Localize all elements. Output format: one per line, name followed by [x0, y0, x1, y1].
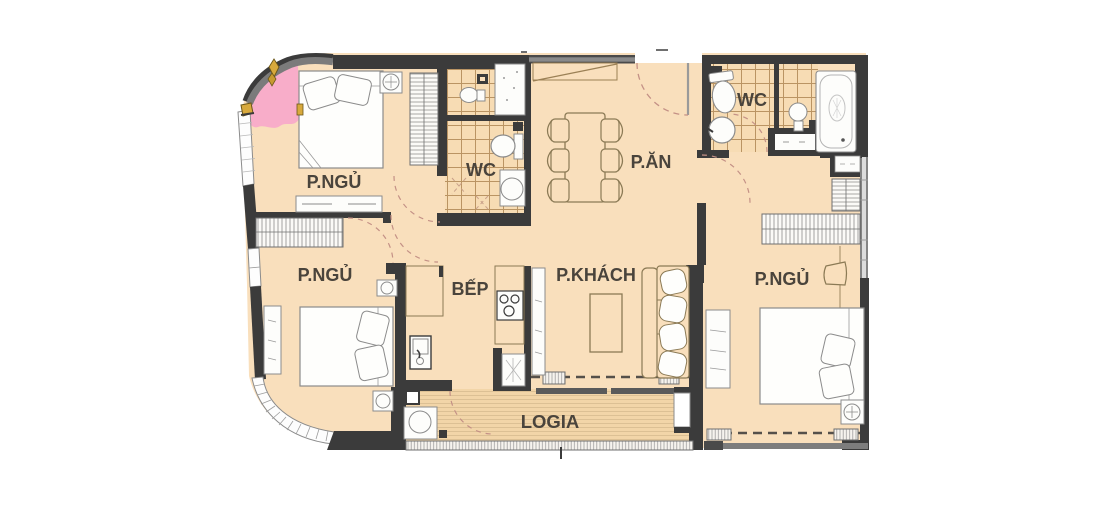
svg-text:P.NGỦ: P.NGỦ: [298, 264, 353, 285]
svg-text:P.NGỦ: P.NGỦ: [307, 171, 362, 192]
svg-text:P.ĂN: P.ĂN: [631, 151, 672, 172]
svg-text:BẾP: BẾP: [451, 278, 488, 299]
svg-text:WC: WC: [737, 90, 767, 110]
svg-text:P.KHÁCH: P.KHÁCH: [556, 264, 636, 285]
svg-text:WC: WC: [466, 160, 496, 180]
svg-text:LOGIA: LOGIA: [521, 411, 580, 432]
svg-text:P.NGỦ: P.NGỦ: [755, 268, 810, 289]
